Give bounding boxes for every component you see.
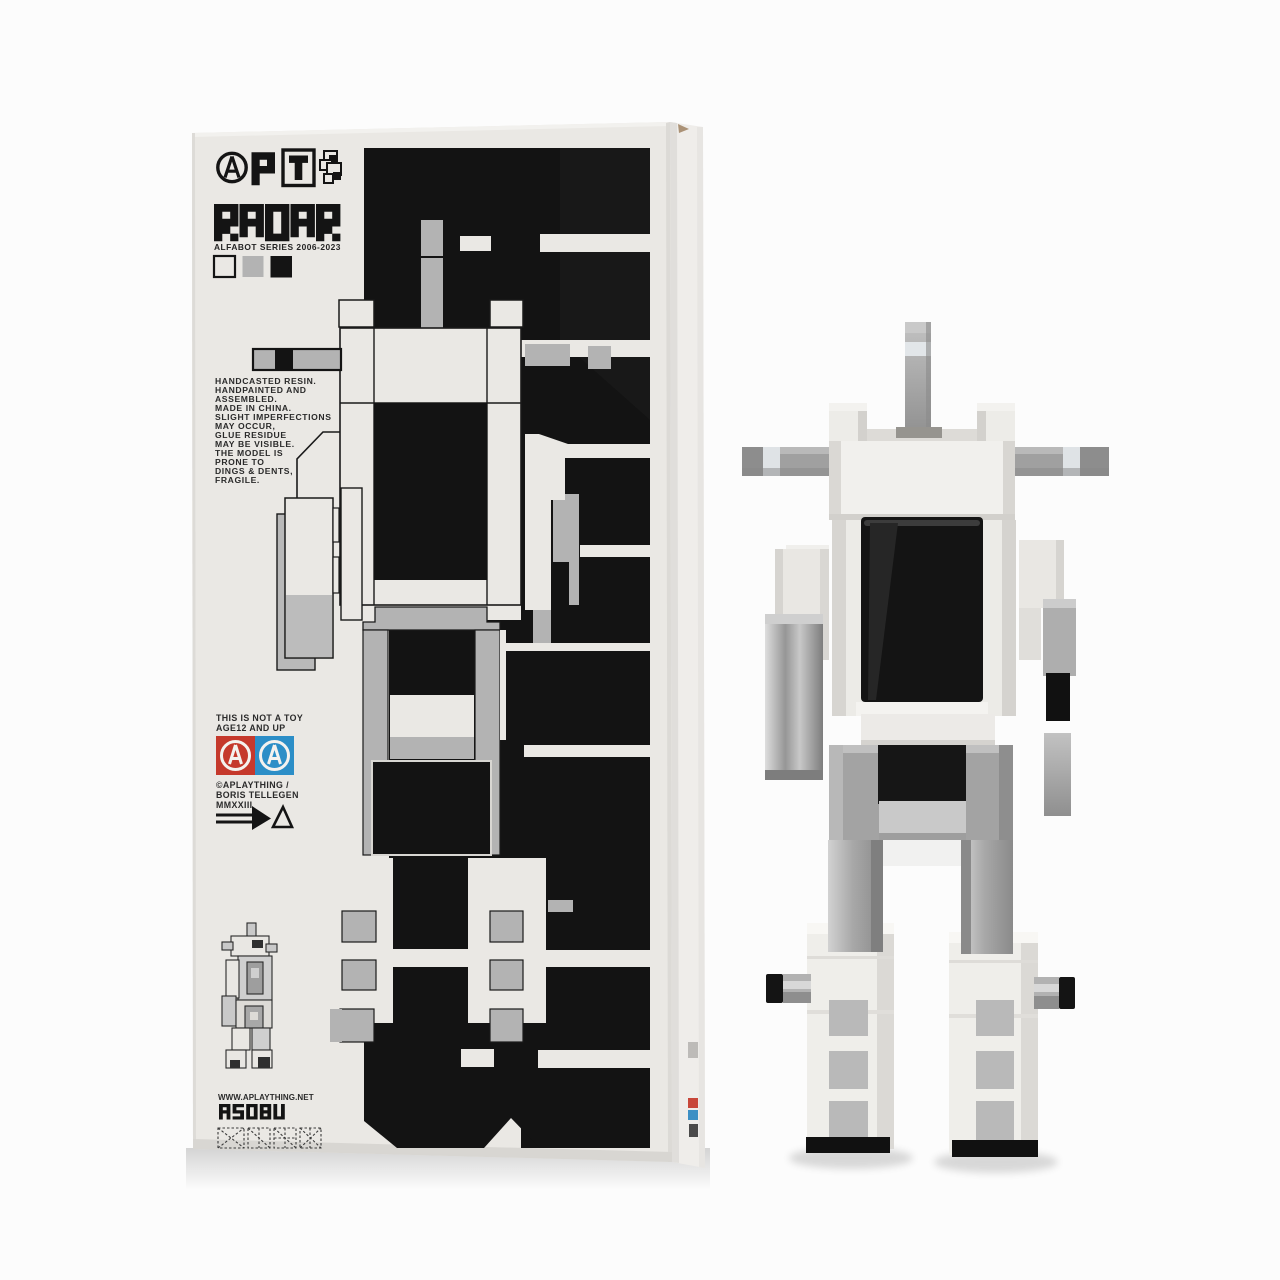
svg-text:FRAGILE.: FRAGILE.	[215, 475, 260, 485]
svg-text:BORIS TELLEGEN: BORIS TELLEGEN	[216, 790, 299, 800]
svg-text:©APLAYTHING /: ©APLAYTHING /	[216, 780, 289, 790]
svg-text:ALFABOT SERIES 2006-2023: ALFABOT SERIES 2006-2023	[214, 242, 341, 252]
svg-text:MMXXIII: MMXXIII	[216, 800, 253, 810]
svg-text:WWW.APLAYTHING.NET: WWW.APLAYTHING.NET	[218, 1093, 314, 1102]
svg-text:AGE12 AND UP: AGE12 AND UP	[216, 723, 286, 733]
svg-text:THIS IS NOT A TOY: THIS IS NOT A TOY	[216, 713, 303, 723]
